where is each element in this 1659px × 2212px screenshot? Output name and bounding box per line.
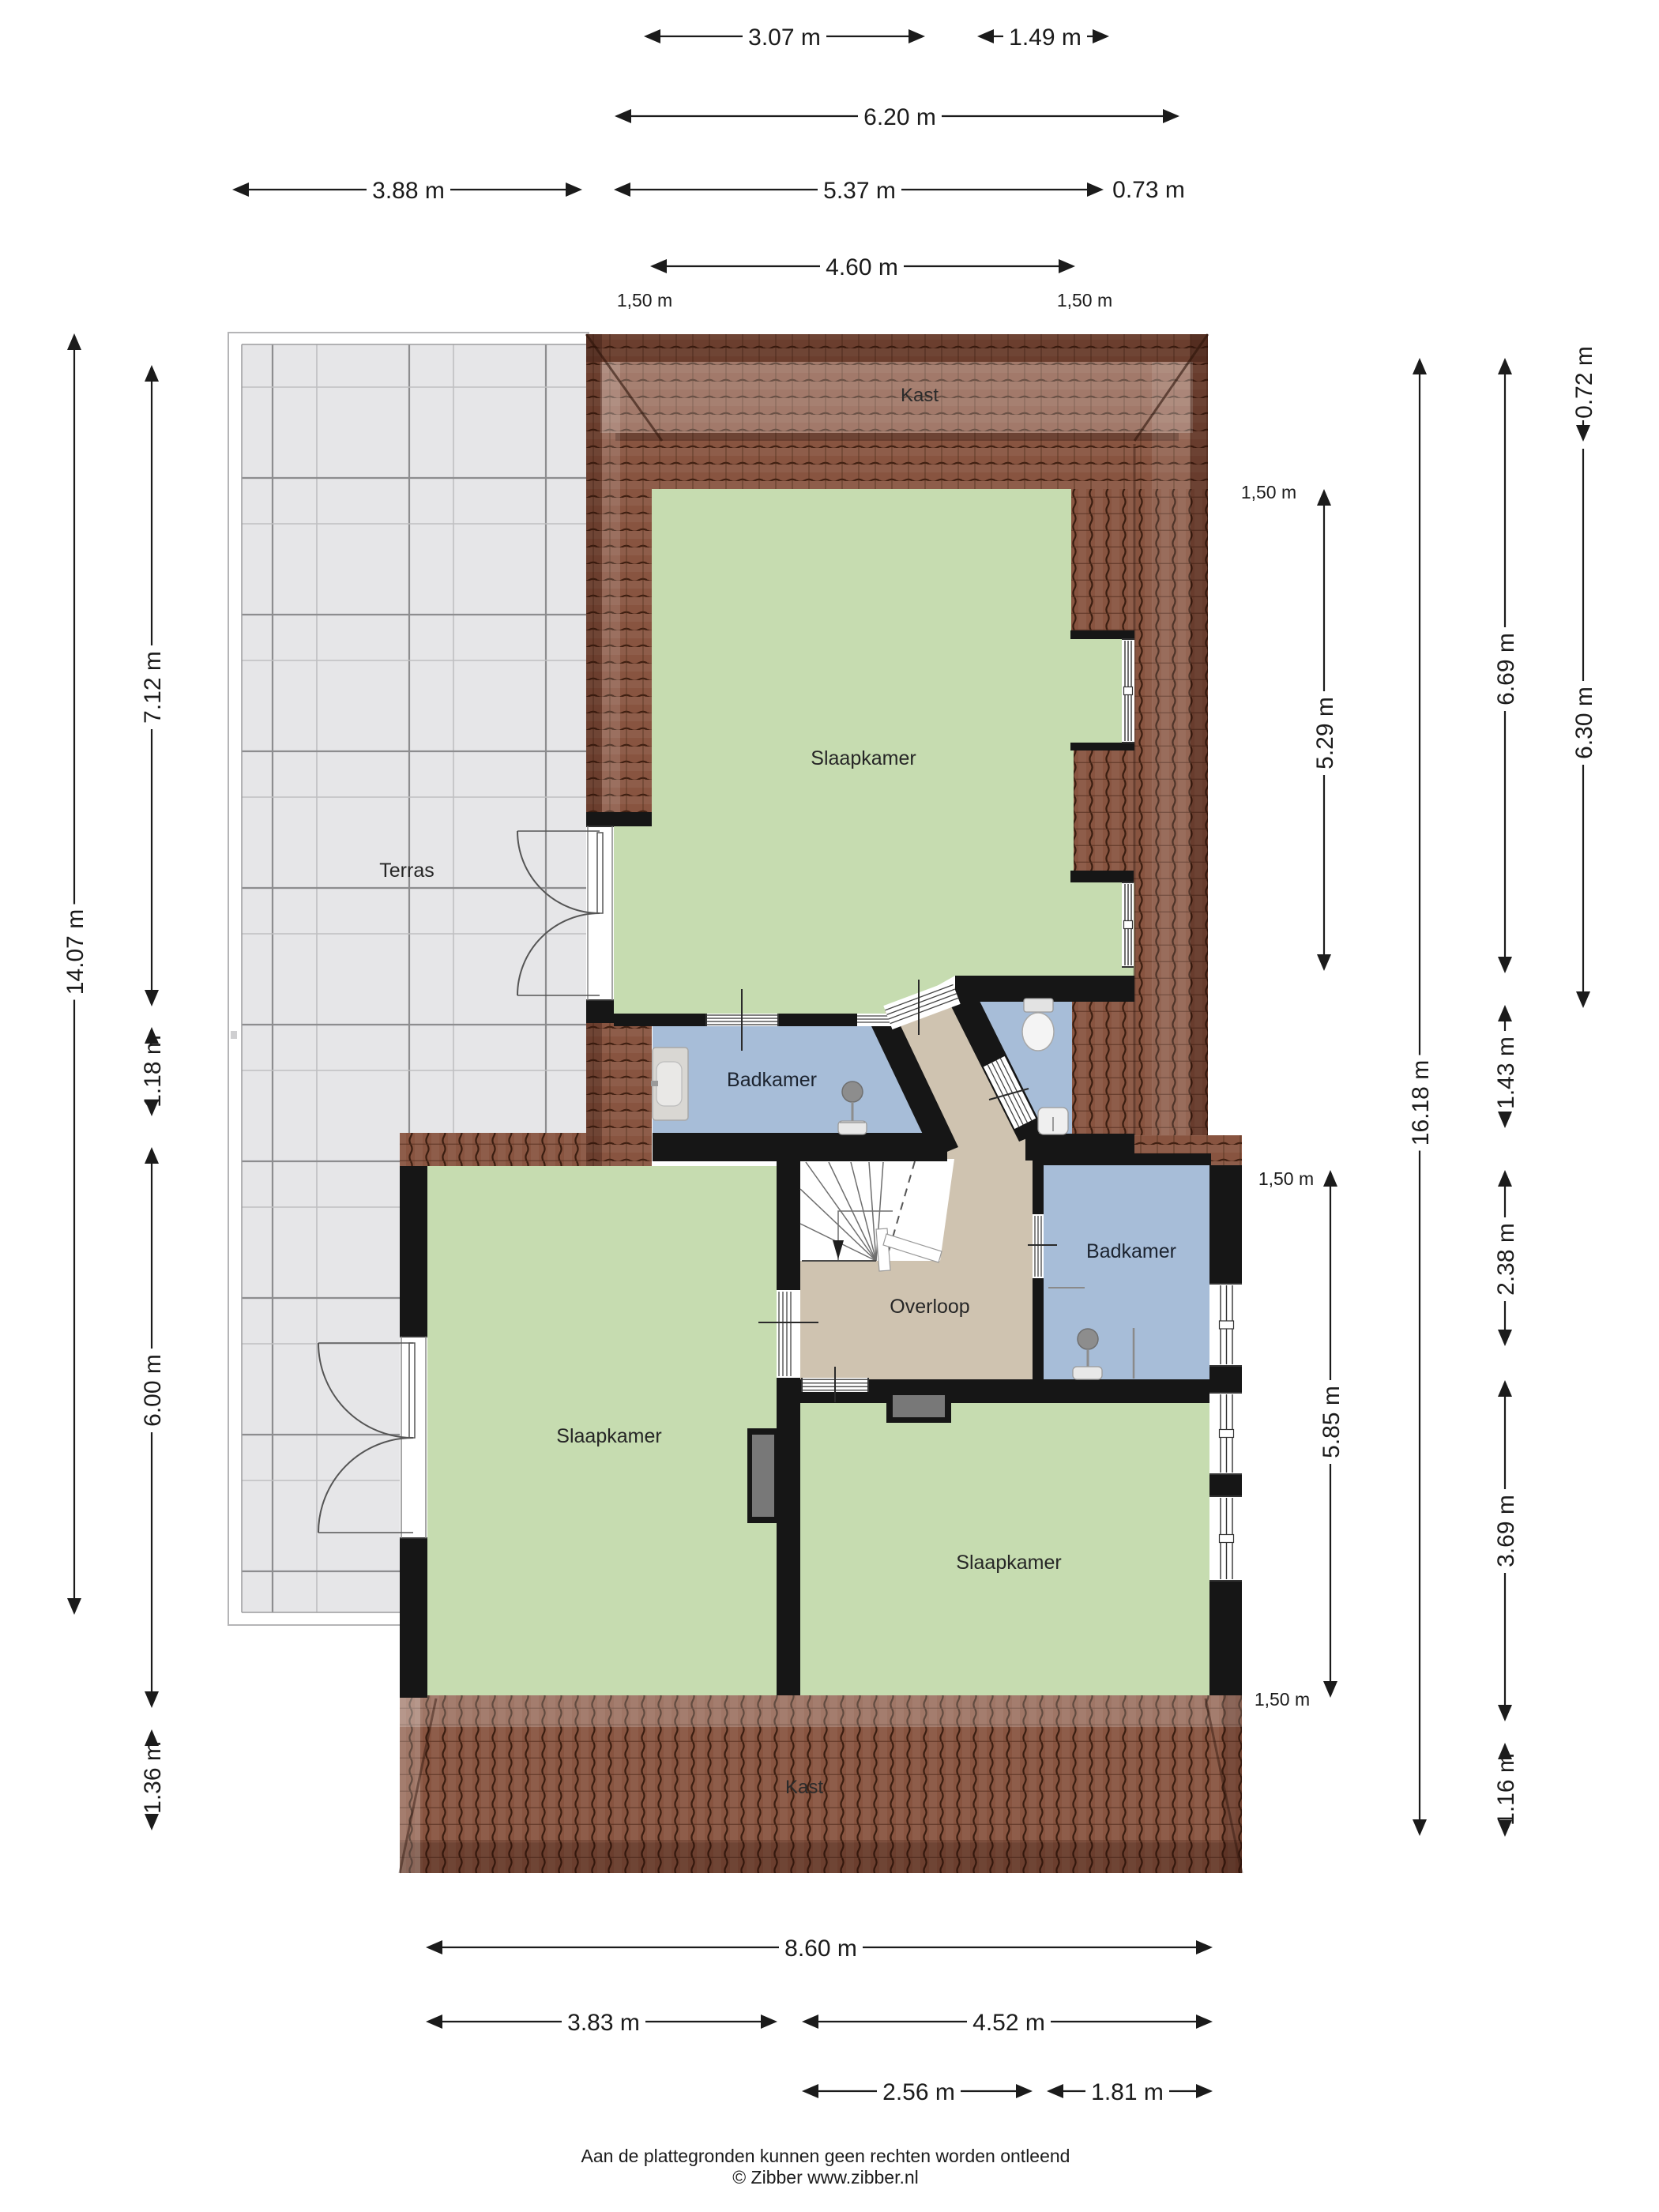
svg-text:1.49 m: 1.49 m	[1009, 24, 1082, 51]
svg-text:Slaapkamer: Slaapkamer	[811, 747, 916, 769]
svg-text:6.30 m: 6.30 m	[1571, 687, 1597, 759]
svg-text:5.85 m: 5.85 m	[1319, 1386, 1345, 1458]
svg-text:4.60 m: 4.60 m	[826, 254, 898, 280]
svg-text:Terras: Terras	[379, 860, 434, 882]
svg-text:6.00 m: 6.00 m	[140, 1354, 166, 1427]
svg-text:1,50 m: 1,50 m	[1241, 482, 1296, 502]
svg-text:3.83 m: 3.83 m	[567, 2010, 640, 2036]
svg-text:3.88 m: 3.88 m	[372, 178, 445, 204]
svg-text:Aan de plattegronden kunnen ge: Aan de plattegronden kunnen geen rechten…	[581, 2146, 1070, 2166]
svg-text:16.18 m: 16.18 m	[1408, 1060, 1434, 1145]
svg-text:0.73 m: 0.73 m	[1112, 177, 1185, 203]
svg-text:1,50 m: 1,50 m	[1255, 1689, 1310, 1710]
svg-text:Overloop: Overloop	[890, 1296, 969, 1318]
svg-text:3.07 m: 3.07 m	[748, 24, 821, 51]
svg-text:Badkamer: Badkamer	[727, 1069, 817, 1091]
svg-text:2.56 m: 2.56 m	[882, 2079, 955, 2105]
svg-text:1.16 m: 1.16 m	[1493, 1753, 1519, 1826]
svg-text:Kast: Kast	[785, 1777, 823, 1798]
svg-text:1,50 m: 1,50 m	[1258, 1168, 1314, 1189]
svg-text:1,50 m: 1,50 m	[617, 290, 672, 310]
svg-text:© Zibber www.zibber.nl: © Zibber www.zibber.nl	[732, 2167, 919, 2188]
svg-text:4.52 m: 4.52 m	[972, 2010, 1045, 2036]
svg-text:8.60 m: 8.60 m	[784, 1935, 857, 1962]
svg-text:2.38 m: 2.38 m	[1493, 1223, 1519, 1296]
svg-text:Badkamer: Badkamer	[1086, 1240, 1176, 1262]
svg-text:1,50 m: 1,50 m	[1057, 290, 1112, 310]
svg-text:1.18 m: 1.18 m	[140, 1035, 166, 1108]
svg-text:6.20 m: 6.20 m	[863, 104, 936, 130]
svg-text:1.36 m: 1.36 m	[140, 1741, 166, 1814]
svg-text:0.72 m: 0.72 m	[1571, 346, 1597, 419]
svg-text:5.29 m: 5.29 m	[1312, 697, 1338, 769]
svg-text:1.81 m: 1.81 m	[1091, 2079, 1164, 2105]
svg-text:6.69 m: 6.69 m	[1493, 633, 1519, 705]
svg-text:1.43 m: 1.43 m	[1493, 1036, 1519, 1109]
svg-text:Kast: Kast	[901, 385, 939, 406]
svg-text:3.69 m: 3.69 m	[1493, 1495, 1519, 1567]
svg-text:14.07 m: 14.07 m	[62, 909, 88, 995]
svg-text:Slaapkamer: Slaapkamer	[956, 1552, 1061, 1574]
svg-text:7.12 m: 7.12 m	[140, 651, 166, 724]
svg-text:Slaapkamer: Slaapkamer	[556, 1425, 661, 1447]
svg-text:5.37 m: 5.37 m	[823, 178, 896, 204]
